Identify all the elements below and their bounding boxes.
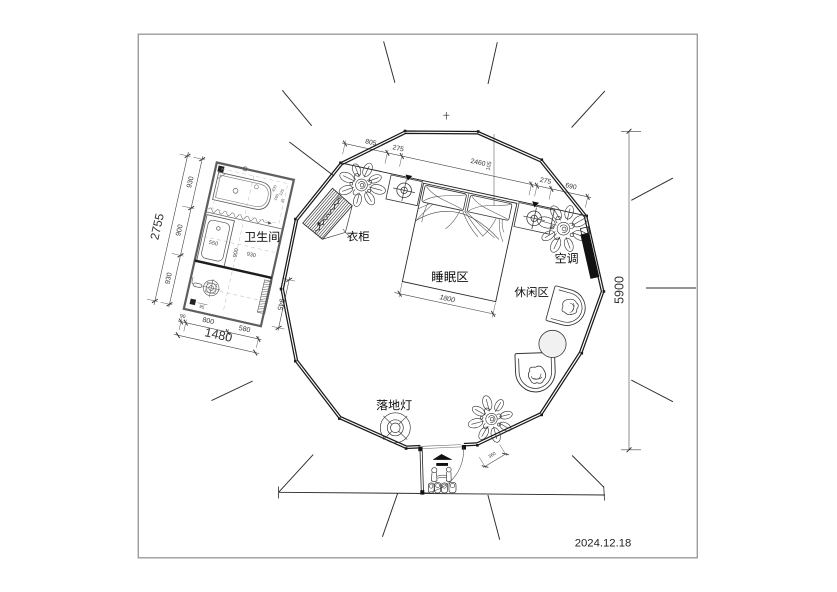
svg-text:5900: 5900: [613, 276, 627, 304]
svg-text:2024.12.18: 2024.12.18: [575, 538, 632, 550]
